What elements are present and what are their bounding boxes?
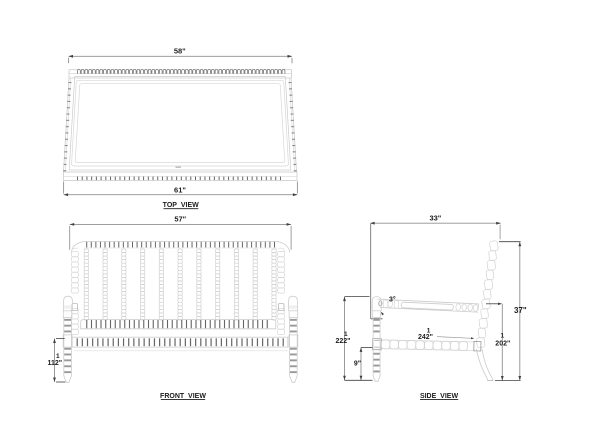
svg-text:FRONT VIEW: FRONT VIEW — [160, 393, 206, 400]
svg-text:SIDE VIEW: SIDE VIEW — [420, 393, 459, 400]
svg-text:TOP VIEW: TOP VIEW — [163, 202, 199, 209]
svg-text:61": 61" — [174, 186, 186, 195]
svg-text:58": 58" — [174, 47, 186, 56]
svg-text:57": 57" — [174, 215, 186, 224]
svg-text:222": 222" — [336, 338, 351, 345]
svg-text:1: 1 — [500, 333, 504, 340]
svg-text:112": 112" — [47, 360, 62, 367]
svg-text:202": 202" — [495, 341, 510, 348]
svg-text:37": 37" — [514, 306, 527, 315]
svg-text:9": 9" — [354, 360, 361, 367]
svg-text:242": 242" — [418, 334, 433, 341]
svg-text:3°: 3° — [389, 296, 396, 304]
svg-text:33": 33" — [429, 214, 441, 223]
